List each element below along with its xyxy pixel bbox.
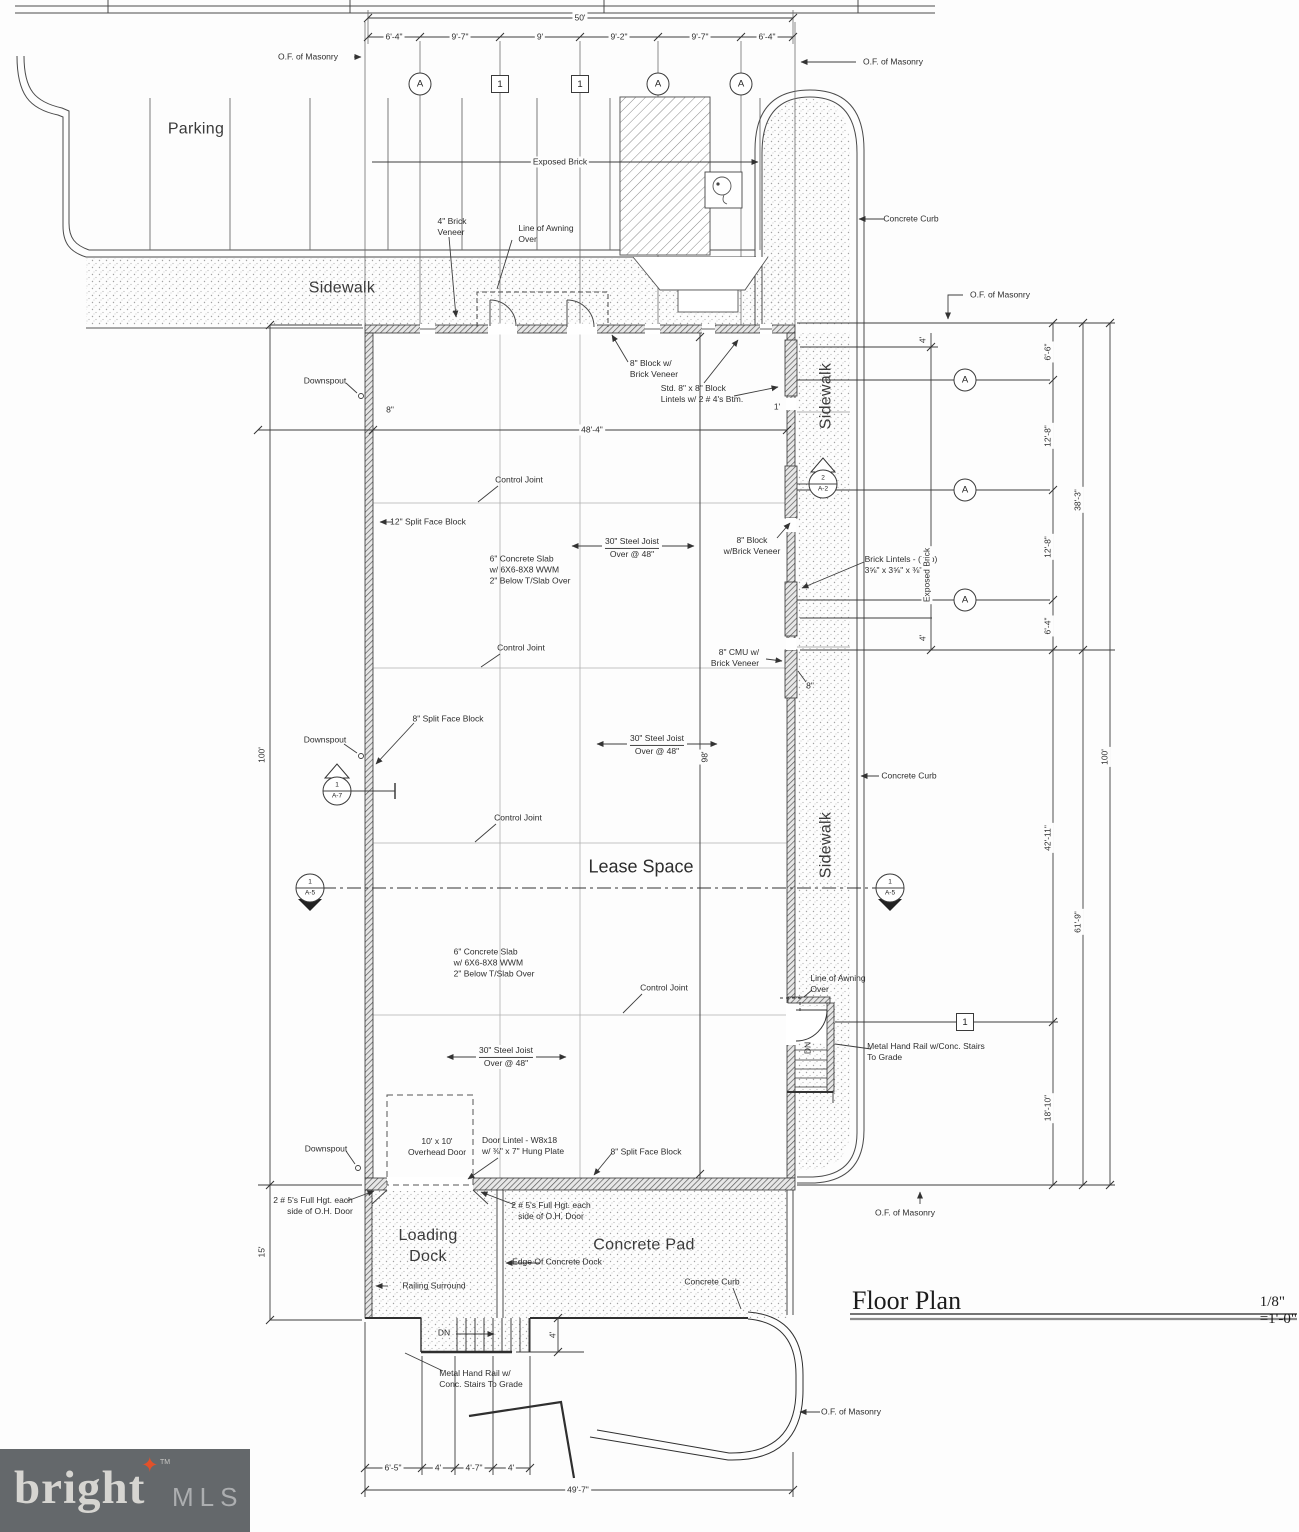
dim-bottom-seg-2: 4'	[433, 1462, 443, 1473]
grid-marker-a-3: A	[730, 73, 753, 96]
awning-note-right: Line of Awning Over	[810, 973, 865, 995]
grid-marker-side-a-2: A	[954, 479, 977, 502]
concrete-curb-note-bottom: Concrete Curb	[684, 1276, 739, 1287]
grid-marker-side-a-1: A	[954, 369, 977, 392]
control-joint-note-1: Control Joint	[495, 474, 543, 485]
section-marker-a2: 2A-2	[809, 470, 838, 499]
block8-top-note: 8" Block w/ Brick Veneer	[630, 358, 678, 380]
exposed-brick-note-right: Exposed Brick	[921, 546, 932, 604]
cmu8-note: 8" CMU w/ Brick Veneer	[711, 647, 759, 669]
concrete-curb-note-top: Concrete Curb	[883, 213, 938, 224]
section-marker-a7: 1A-7	[323, 777, 352, 806]
of-masonry-bottom-2: O.F. of Masonry	[821, 1406, 881, 1417]
parking-label: Parking	[168, 120, 224, 141]
logo-tm-mark: TM	[160, 1459, 170, 1466]
of-masonry-bottom-1: O.F. of Masonry	[875, 1207, 935, 1218]
logo-suffix-text: MLS	[172, 1482, 243, 1513]
dim-top-seg-6: 6'-4"	[757, 31, 778, 42]
rebar-note-right: 2 # 5's Full Hgt. each side of O.H. Door	[511, 1200, 591, 1222]
grid-marker-side-a-3: A	[954, 589, 977, 612]
dim-bottom-seg-3: 4'-7"	[464, 1462, 485, 1473]
drawing-scale: 1/8" =1'-0"	[1260, 1294, 1297, 1328]
split-face-8-note-mid: 8" Split Face Block	[412, 713, 483, 724]
grid-marker-a-1: A	[409, 73, 432, 96]
of-masonry-right: O.F. of Masonry	[970, 289, 1030, 300]
dim-left-dock: 15'	[256, 1244, 267, 1259]
dim-top-seg-3: 9'	[535, 31, 545, 42]
joist-span-arrows	[447, 546, 717, 1057]
dim-top-seg-5: 9'-7"	[690, 31, 711, 42]
dim-interior-width: 48'-4"	[579, 424, 605, 435]
control-joint-note-3: Control Joint	[494, 812, 542, 823]
dim-top-seg-1: 6'-4"	[384, 31, 405, 42]
slab-note-1: 6" Concrete Slab w/ 6X6-8X8 WWM 2" Below…	[490, 553, 571, 586]
control-joint-note-4: Control Joint	[640, 982, 688, 993]
dim-bottom-seg-4: 4'	[506, 1462, 516, 1473]
ramp-leader	[469, 1402, 574, 1478]
section-marker-a5-right: 1A-5	[876, 874, 905, 903]
interior-joint-lines	[373, 333, 787, 1178]
steel-joist-note-3: 30" Steel JoistOver @ 48"	[476, 1045, 536, 1069]
dim-top-seg-4: 9'-2"	[609, 31, 630, 42]
dim-right-upper-3: 12'-8"	[1042, 534, 1053, 560]
dim-right-upper-1: 6'-6"	[1042, 342, 1053, 363]
awning-note-top: Line of Awning Over	[518, 223, 573, 245]
handrail-note-right: Metal Hand Rail w/Conc. Stairs To Grade	[867, 1041, 985, 1063]
dim-interior-depth: 98'	[699, 749, 710, 764]
floor-plan-page: Parking Sidewalk Sidewalk Sidewalk Lease…	[0, 0, 1299, 1532]
section-marker-a5-left: 1A-5	[296, 874, 325, 903]
grid-marker-a-2: A	[647, 73, 670, 96]
lease-space-label: Lease Space	[588, 855, 693, 878]
dim-bottom-overall: 49'-7"	[565, 1484, 591, 1495]
of-masonry-top-right: O.F. of Masonry	[863, 56, 923, 67]
of-masonry-top-left: O.F. of Masonry	[278, 51, 338, 62]
dim-bottom-seg-1: 6'-5"	[383, 1462, 404, 1473]
grid-marker-1-2: 1	[571, 75, 589, 93]
concrete-curb-note-right: Concrete Curb	[881, 770, 936, 781]
std-lintels-note: Std. 8" x 8" Block Lintels w/ 2 # 4's Bt…	[661, 383, 743, 405]
dim-left-building: 100'	[256, 745, 267, 765]
dn-note-right: DN	[802, 1042, 813, 1054]
steel-joist-note-1: 30" Steel JoistOver @ 48"	[602, 536, 662, 560]
dim-right-upper-2: 12'-8"	[1042, 423, 1053, 449]
door-lintel-note: Door Lintel - W8x18 w/ ⅜" x 7" Hung Plat…	[482, 1135, 564, 1157]
block8-right-note: 8" Block w/Brick Veneer	[724, 535, 781, 557]
edge-dock-note: Edge Of Concrete Dock	[512, 1256, 602, 1267]
overhead-door-note: 10' x 10' Overhead Door	[408, 1136, 466, 1158]
exposed-brick-note-top: Exposed Brick	[531, 156, 589, 167]
dim-wall-right-8in: 8"	[806, 680, 814, 691]
dim-right-lower-2: 18'-10"	[1042, 1093, 1053, 1123]
steel-joist-note-2: 30" Steel JoistOver @ 48"	[627, 733, 687, 757]
split-face-8-note-bottom: 8" Split Face Block	[610, 1146, 681, 1157]
dim-top-overall: 50'	[572, 12, 587, 23]
sidewalk-right-lower-label: Sidewalk	[817, 812, 838, 878]
dim-right-lower-total: 61'-9"	[1072, 909, 1083, 935]
dim-sidewalk-4ft-bottom: 4'	[917, 635, 928, 641]
downspout-note-2: Downspout	[304, 734, 347, 745]
dim-offset-1ft: 1'	[774, 401, 780, 412]
brick-veneer-4-note: 4" Brick Veneer	[438, 216, 467, 238]
sidewalk-right-upper-label: Sidewalk	[817, 363, 838, 429]
building-walls	[365, 325, 797, 1318]
slab-note-2: 6" Concrete Slab w/ 6X6-8X8 WWM 2" Below…	[454, 946, 535, 979]
railing-note: Railing Surround	[402, 1280, 465, 1291]
sidewalk-top-label: Sidewalk	[309, 279, 375, 300]
logo-star-icon: ✦	[141, 1453, 159, 1478]
control-joint-note-2: Control Joint	[497, 642, 545, 653]
loading-dock-label: Loading Dock	[398, 1226, 457, 1268]
brightmls-logo: bright ✦ TM MLS	[0, 1449, 250, 1532]
dim-right-upper-total: 38'-3"	[1072, 487, 1083, 513]
detail-marker-1: 1	[956, 1013, 974, 1031]
dim-right-overall: 100'	[1099, 747, 1110, 767]
dim-sidewalk-4ft-top: 4'	[917, 337, 928, 343]
dn-note-bottom: DN	[438, 1327, 450, 1338]
split-face-12-note: 12" Split Face Block	[390, 516, 466, 527]
handrail-note-bottom: Metal Hand Rail w/ Conc. Stairs To Grade	[439, 1368, 522, 1390]
dim-stair-depth: 4'	[547, 1332, 558, 1338]
grid-marker-1-1: 1	[491, 75, 509, 93]
rebar-note-left: 2 # 5's Full Hgt. each side of O.H. Door	[273, 1195, 353, 1217]
wall-openings	[387, 324, 796, 1192]
dim-right-upper-4: 6'-4"	[1042, 616, 1053, 637]
downspout-note-1: Downspout	[304, 375, 347, 386]
dim-top-seg-2: 9'-7"	[450, 31, 471, 42]
dim-wall-left-8in: 8"	[386, 404, 394, 415]
downspout-note-3: Downspout	[305, 1143, 348, 1154]
concrete-pad-label: Concrete Pad	[593, 1236, 694, 1257]
dim-right-lower-1: 42'-11"	[1042, 823, 1053, 853]
drawing-title: Floor Plan	[852, 1286, 961, 1316]
logo-brand-text: bright	[14, 1451, 145, 1526]
